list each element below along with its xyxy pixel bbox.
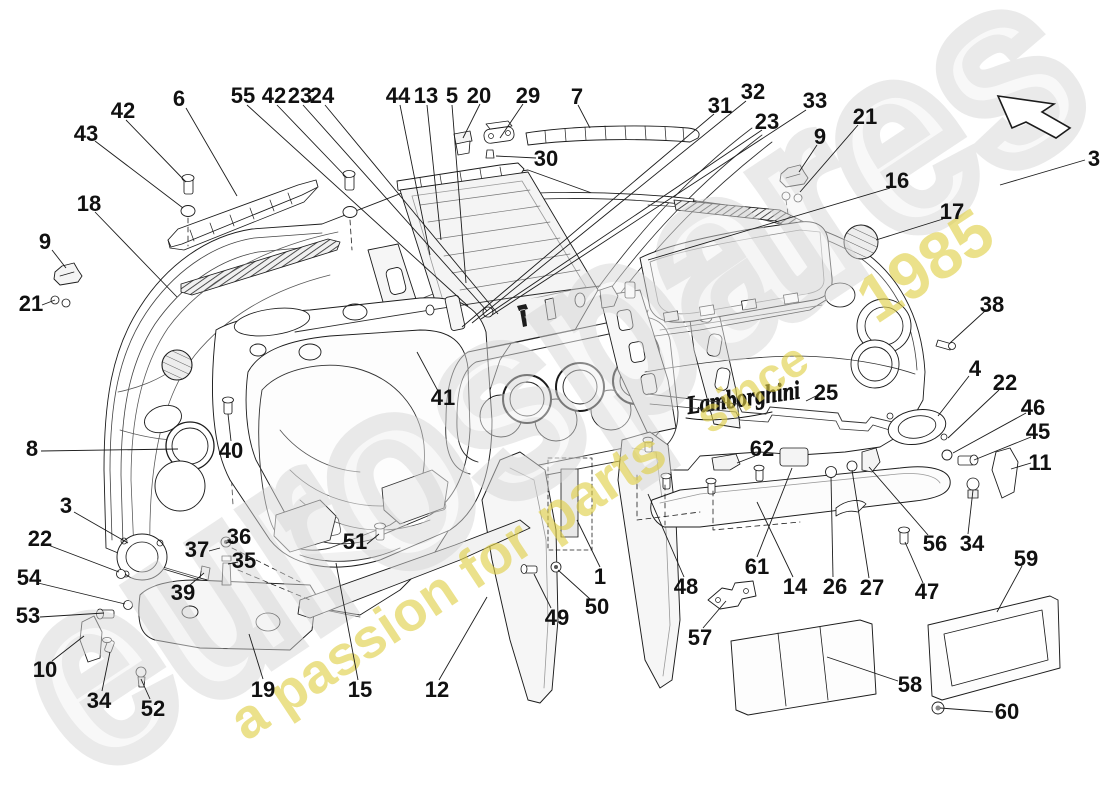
svg-text:52: 52	[141, 696, 165, 721]
svg-text:18: 18	[77, 191, 101, 216]
svg-text:31: 31	[708, 93, 732, 118]
svg-text:43: 43	[74, 121, 98, 146]
svg-text:12: 12	[425, 677, 449, 702]
svg-text:10: 10	[33, 657, 57, 682]
svg-text:42: 42	[111, 98, 135, 123]
svg-text:29: 29	[516, 83, 540, 108]
svg-text:33: 33	[803, 88, 827, 113]
svg-text:5: 5	[446, 83, 458, 108]
svg-text:14: 14	[783, 574, 808, 599]
svg-text:30: 30	[534, 146, 558, 171]
svg-text:23: 23	[288, 83, 312, 108]
svg-text:9: 9	[814, 124, 826, 149]
svg-text:35: 35	[232, 548, 256, 573]
svg-text:56: 56	[923, 531, 947, 556]
svg-text:53: 53	[16, 603, 40, 628]
svg-text:22: 22	[28, 526, 52, 551]
svg-text:13: 13	[414, 83, 438, 108]
svg-text:24: 24	[310, 83, 335, 108]
svg-text:15: 15	[348, 677, 372, 702]
svg-text:47: 47	[915, 579, 939, 604]
svg-text:25: 25	[814, 380, 838, 405]
svg-text:49: 49	[545, 605, 569, 630]
svg-text:42: 42	[262, 83, 286, 108]
svg-text:22: 22	[993, 370, 1017, 395]
svg-text:48: 48	[674, 574, 698, 599]
svg-text:58: 58	[898, 672, 922, 697]
svg-text:36: 36	[227, 524, 251, 549]
svg-text:23: 23	[755, 109, 779, 134]
svg-text:9: 9	[39, 229, 51, 254]
svg-text:8: 8	[26, 436, 38, 461]
svg-text:21: 21	[19, 291, 43, 316]
svg-text:46: 46	[1021, 395, 1045, 420]
svg-text:6: 6	[173, 86, 185, 111]
svg-text:54: 54	[17, 565, 42, 590]
svg-text:26: 26	[823, 574, 847, 599]
svg-text:57: 57	[688, 625, 712, 650]
svg-text:17: 17	[940, 199, 964, 224]
svg-text:27: 27	[860, 575, 884, 600]
svg-text:59: 59	[1014, 546, 1038, 571]
svg-text:45: 45	[1026, 419, 1050, 444]
svg-text:1: 1	[594, 564, 606, 589]
svg-text:3: 3	[60, 493, 72, 518]
svg-text:40: 40	[219, 438, 243, 463]
svg-text:34: 34	[960, 531, 985, 556]
svg-text:19: 19	[251, 677, 275, 702]
svg-text:38: 38	[980, 292, 1004, 317]
svg-text:7: 7	[571, 84, 583, 109]
svg-text:61: 61	[745, 554, 769, 579]
svg-text:11: 11	[1028, 450, 1051, 475]
svg-text:62: 62	[750, 436, 774, 461]
svg-text:39: 39	[171, 580, 195, 605]
svg-text:4: 4	[969, 356, 982, 381]
svg-text:21: 21	[853, 104, 877, 129]
svg-text:44: 44	[386, 83, 411, 108]
svg-text:3: 3	[1088, 146, 1100, 171]
svg-text:41: 41	[431, 385, 455, 410]
svg-text:34: 34	[87, 688, 112, 713]
svg-text:32: 32	[741, 79, 765, 104]
svg-text:51: 51	[343, 529, 367, 554]
svg-text:55: 55	[231, 83, 255, 108]
svg-text:37: 37	[185, 537, 209, 562]
svg-text:60: 60	[995, 699, 1019, 724]
svg-text:16: 16	[885, 168, 909, 193]
svg-text:20: 20	[467, 83, 491, 108]
svg-text:50: 50	[585, 594, 609, 619]
